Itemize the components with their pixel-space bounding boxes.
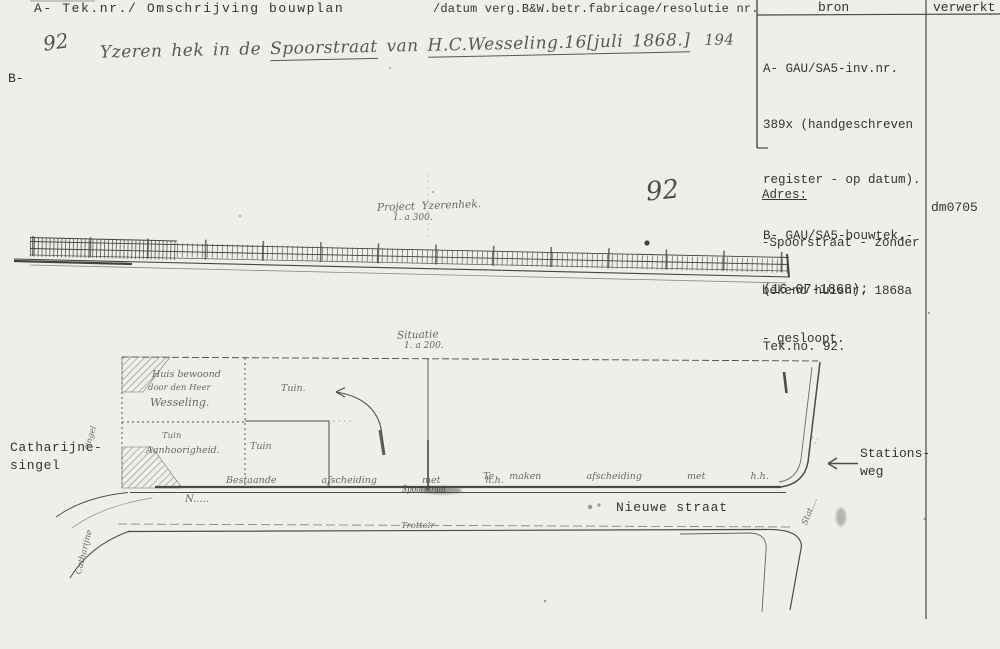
street-label-stationsweg-1: Stations-: [860, 446, 930, 461]
handwritten-teknr: 92: [41, 28, 70, 55]
column-header-omschrijving: A- Tek.nr./ Omschrijving bouwplan: [34, 1, 344, 16]
column-header-datum: /datum verg.B&W.betr.fabricage/resolutie…: [433, 2, 759, 17]
archival-record-sheet: A- Tek.nr./ Omschrijving bouwplan /datum…: [0, 0, 1000, 649]
ink-smudge: [836, 508, 846, 526]
street-scribble-n: N.....: [185, 494, 209, 505]
street-label-stationsweg-2: weg: [860, 464, 883, 479]
column-header-bron: bron: [818, 0, 849, 15]
parcel-note-tuin-klein: Tuin: [250, 441, 272, 452]
fence-note-bestaande: Bestaande afscheiding met h.h.: [226, 475, 504, 486]
parcel-note-huis-1: Huis bewoond: [152, 369, 221, 380]
adres-line: -Spoorstraat - zonder: [762, 235, 920, 251]
adres-title: Adres:: [762, 187, 920, 203]
parcel-note-tuin-mid: Tuin.: [281, 383, 306, 394]
arrow-left-icon: [828, 458, 858, 469]
adres-line: - gesloopt.: [762, 331, 920, 347]
fence-note-temaken: Te maken afscheiding met h.h.: [483, 471, 769, 482]
parcel-note-links-2: Aanhoorigheid.: [146, 445, 220, 456]
adres-line: bekend huisnr. 1868a: [762, 283, 920, 299]
parcel-note-huis-2: door den Heer: [148, 383, 211, 393]
plan-scale: 1. a 200.: [404, 341, 444, 351]
ink-smudge: [420, 487, 462, 494]
kerb-scribble: Trottoir: [401, 521, 435, 531]
elevation-scale: 1. a 300.: [393, 213, 433, 223]
entry-part-resolutienr: 194: [704, 30, 735, 49]
column-header-verwerkt: verwerkt: [933, 0, 995, 15]
parcel-note-links-1: Tuin: [162, 431, 181, 441]
verwerkt-code: dm0705: [931, 200, 978, 215]
entry-part-spoorstraat: Spoorstraat: [270, 37, 378, 61]
bron-line: A- GAU/SA5-inv.nr.: [763, 60, 921, 79]
adres-block: Adres: -Spoorstraat - zonder bekend huis…: [762, 155, 920, 379]
bron-line: 389x (handgeschreven: [763, 116, 921, 135]
b-row-label: B-: [8, 71, 24, 86]
entry-part-3: van: [377, 36, 427, 57]
entry-part-1: Yzeren hek in de: [100, 39, 271, 63]
drawing-sheet-number: 92: [645, 174, 681, 207]
street-label-nieuwe-straat: Nieuwe straat: [616, 500, 728, 515]
street-label-catharijnesingel-2: singel: [10, 458, 60, 473]
plan-title: Situatie: [397, 328, 439, 341]
parcel-note-huis-3: Wesseling.: [150, 396, 209, 409]
